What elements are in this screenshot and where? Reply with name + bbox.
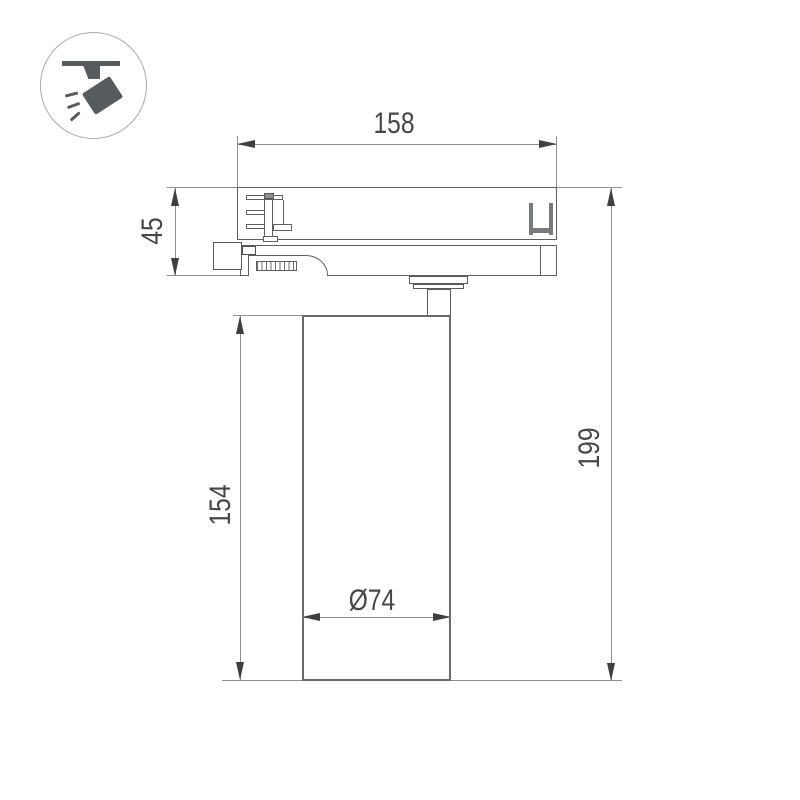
dimension-label-overall-height: 199 <box>573 427 607 468</box>
dimension-line-body-height <box>240 316 241 680</box>
contact-right-line <box>283 200 284 224</box>
lamp-body <box>302 315 451 681</box>
arrow-up-icon <box>236 316 244 334</box>
light-ray-icon <box>65 91 78 97</box>
arrow-right-icon <box>433 613 451 621</box>
lever-foot <box>263 236 278 242</box>
stem-column <box>427 289 452 317</box>
dimension-label-body-diameter: Ø74 <box>349 584 396 618</box>
dimension-label-body-height: 154 <box>204 484 238 525</box>
contact-prong <box>246 224 265 229</box>
light-ray-icon <box>66 102 79 109</box>
lamp-head-shape <box>81 76 122 115</box>
arrow-left-icon <box>237 140 255 148</box>
lever-cap <box>264 193 274 199</box>
light-ray-icon <box>70 111 81 121</box>
contact-prong <box>246 210 265 215</box>
adapter-upper-housing <box>237 187 557 240</box>
arrow-down-icon <box>171 258 179 276</box>
dimension-label-adapter-height: 45 <box>136 217 170 244</box>
latch-block <box>213 242 242 270</box>
technical-drawing-canvas: 158 45 154 199 Ø74 <box>0 0 800 800</box>
dimension-line-adapter-width <box>237 144 557 145</box>
arrow-up-icon <box>171 188 179 206</box>
arrow-up-icon <box>607 188 615 206</box>
stem-flange-upper <box>409 276 468 284</box>
arrow-down-icon <box>607 663 615 681</box>
lever-post <box>264 199 273 238</box>
dimension-label-adapter-width: 158 <box>373 107 414 141</box>
arrow-left-icon <box>302 613 320 621</box>
lever-side-tab <box>273 224 292 231</box>
adapter-inner-divider-line <box>540 246 541 275</box>
adapter-grip-ribs <box>256 261 297 271</box>
retaining-clip-icon <box>529 228 553 234</box>
lamp-stem-shape <box>83 65 100 79</box>
track-spotlight-icon <box>40 32 147 139</box>
latch-step <box>242 246 256 255</box>
arrow-right-icon <box>539 140 557 148</box>
arrow-down-icon <box>236 662 244 680</box>
dimension-line-overall-height <box>611 188 612 681</box>
